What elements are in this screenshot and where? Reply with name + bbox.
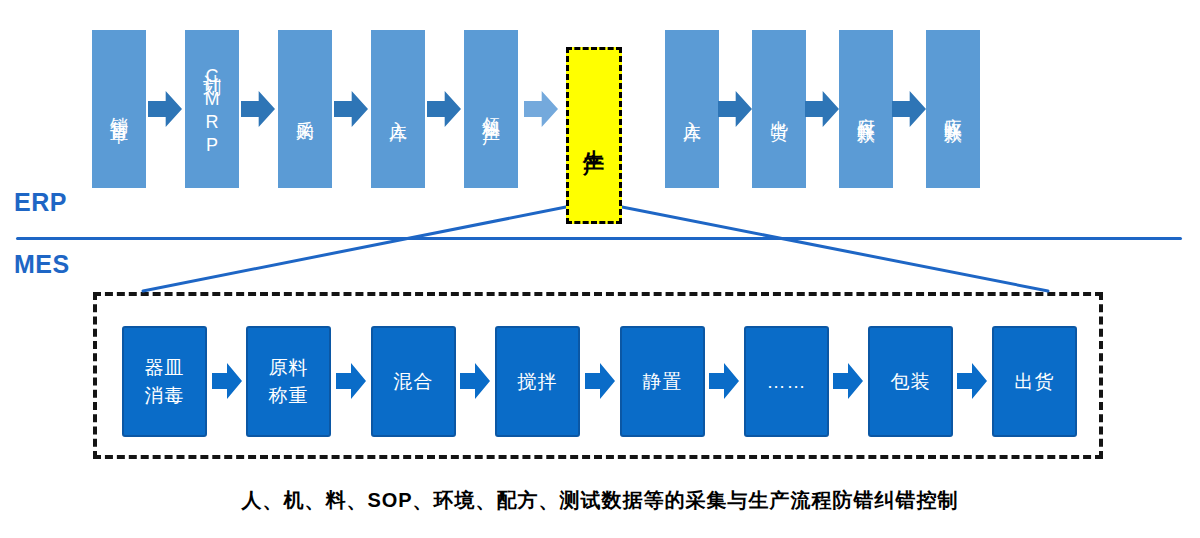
erp-step-label: 销售订单 [110, 103, 128, 115]
erp-step-inbound-2: 入库 [665, 30, 719, 188]
mes-step-packaging: 包装 [868, 326, 953, 437]
mes-step-vessel-sterilize: 器皿 消毒 [122, 326, 207, 437]
erp-step-production-highlight: 生产 [566, 47, 622, 224]
mes-step-label: 混合 [394, 368, 434, 396]
erp-step-label: 计划CMRP [203, 60, 221, 158]
mes-step-label: 原料 称重 [269, 354, 309, 409]
mes-step-label: 包装 [891, 368, 931, 396]
erp-step-accounts-payable: 应付账款 [839, 30, 893, 188]
mes-system-label: MES [14, 250, 70, 279]
mes-step-label: 出货 [1015, 368, 1055, 396]
flow-arrow-icon [334, 91, 368, 127]
flow-arrow-icon [718, 91, 752, 127]
flow-arrow-icon [148, 91, 182, 127]
erp-step-label: 采购 [296, 106, 314, 112]
erp-step-shipment: 出货 [752, 30, 806, 188]
erp-step-material-issue: 领料生产 [464, 30, 518, 188]
erp-step-label: 出货 [770, 106, 788, 112]
erp-mes-divider-line [16, 237, 1182, 240]
flow-arrow-icon [892, 91, 926, 127]
erp-step-sales-order: 销售订单 [92, 30, 146, 188]
diagram-canvas: 销售订单 计划CMRP 采购 入库 领料生产 生产 入库 出货 应付账款 应收账… [0, 0, 1200, 538]
erp-step-label: 入库 [389, 106, 407, 112]
erp-step-accounts-receivable: 应收账款 [926, 30, 980, 188]
production-label: 生产 [584, 133, 605, 139]
mes-step-label: 搅拌 [518, 368, 558, 396]
mes-step-shipment: 出货 [992, 326, 1077, 437]
flow-arrow-icon [241, 91, 275, 127]
erp-step-label: 应付账款 [857, 103, 875, 115]
diagram-caption: 人、机、料、SOP、环境、配方、测试数据等的采集与生产流程防错纠错控制 [0, 487, 1200, 514]
flow-arrow-icon [427, 91, 461, 127]
mes-step-label: …… [767, 368, 807, 396]
erp-step-label: 领料生产 [482, 103, 500, 115]
mes-step-label: 静置 [643, 368, 683, 396]
erp-system-label: ERP [14, 188, 67, 217]
mes-step-ellipsis: …… [744, 326, 829, 437]
erp-step-label: 入库 [683, 106, 701, 112]
mes-step-stir: 搅拌 [495, 326, 580, 437]
erp-step-inbound: 入库 [371, 30, 425, 188]
mes-step-rest: 静置 [620, 326, 705, 437]
flow-arrow-light-icon [524, 91, 558, 127]
erp-step-plan-cmrp: 计划CMRP [185, 30, 239, 188]
mes-step-label: 器皿 消毒 [145, 354, 185, 409]
mes-step-material-weigh: 原料 称重 [246, 326, 331, 437]
erp-step-purchase: 采购 [278, 30, 332, 188]
erp-step-label: 应收账款 [944, 103, 962, 115]
flow-arrow-icon [805, 91, 839, 127]
mes-step-mix: 混合 [371, 326, 456, 437]
